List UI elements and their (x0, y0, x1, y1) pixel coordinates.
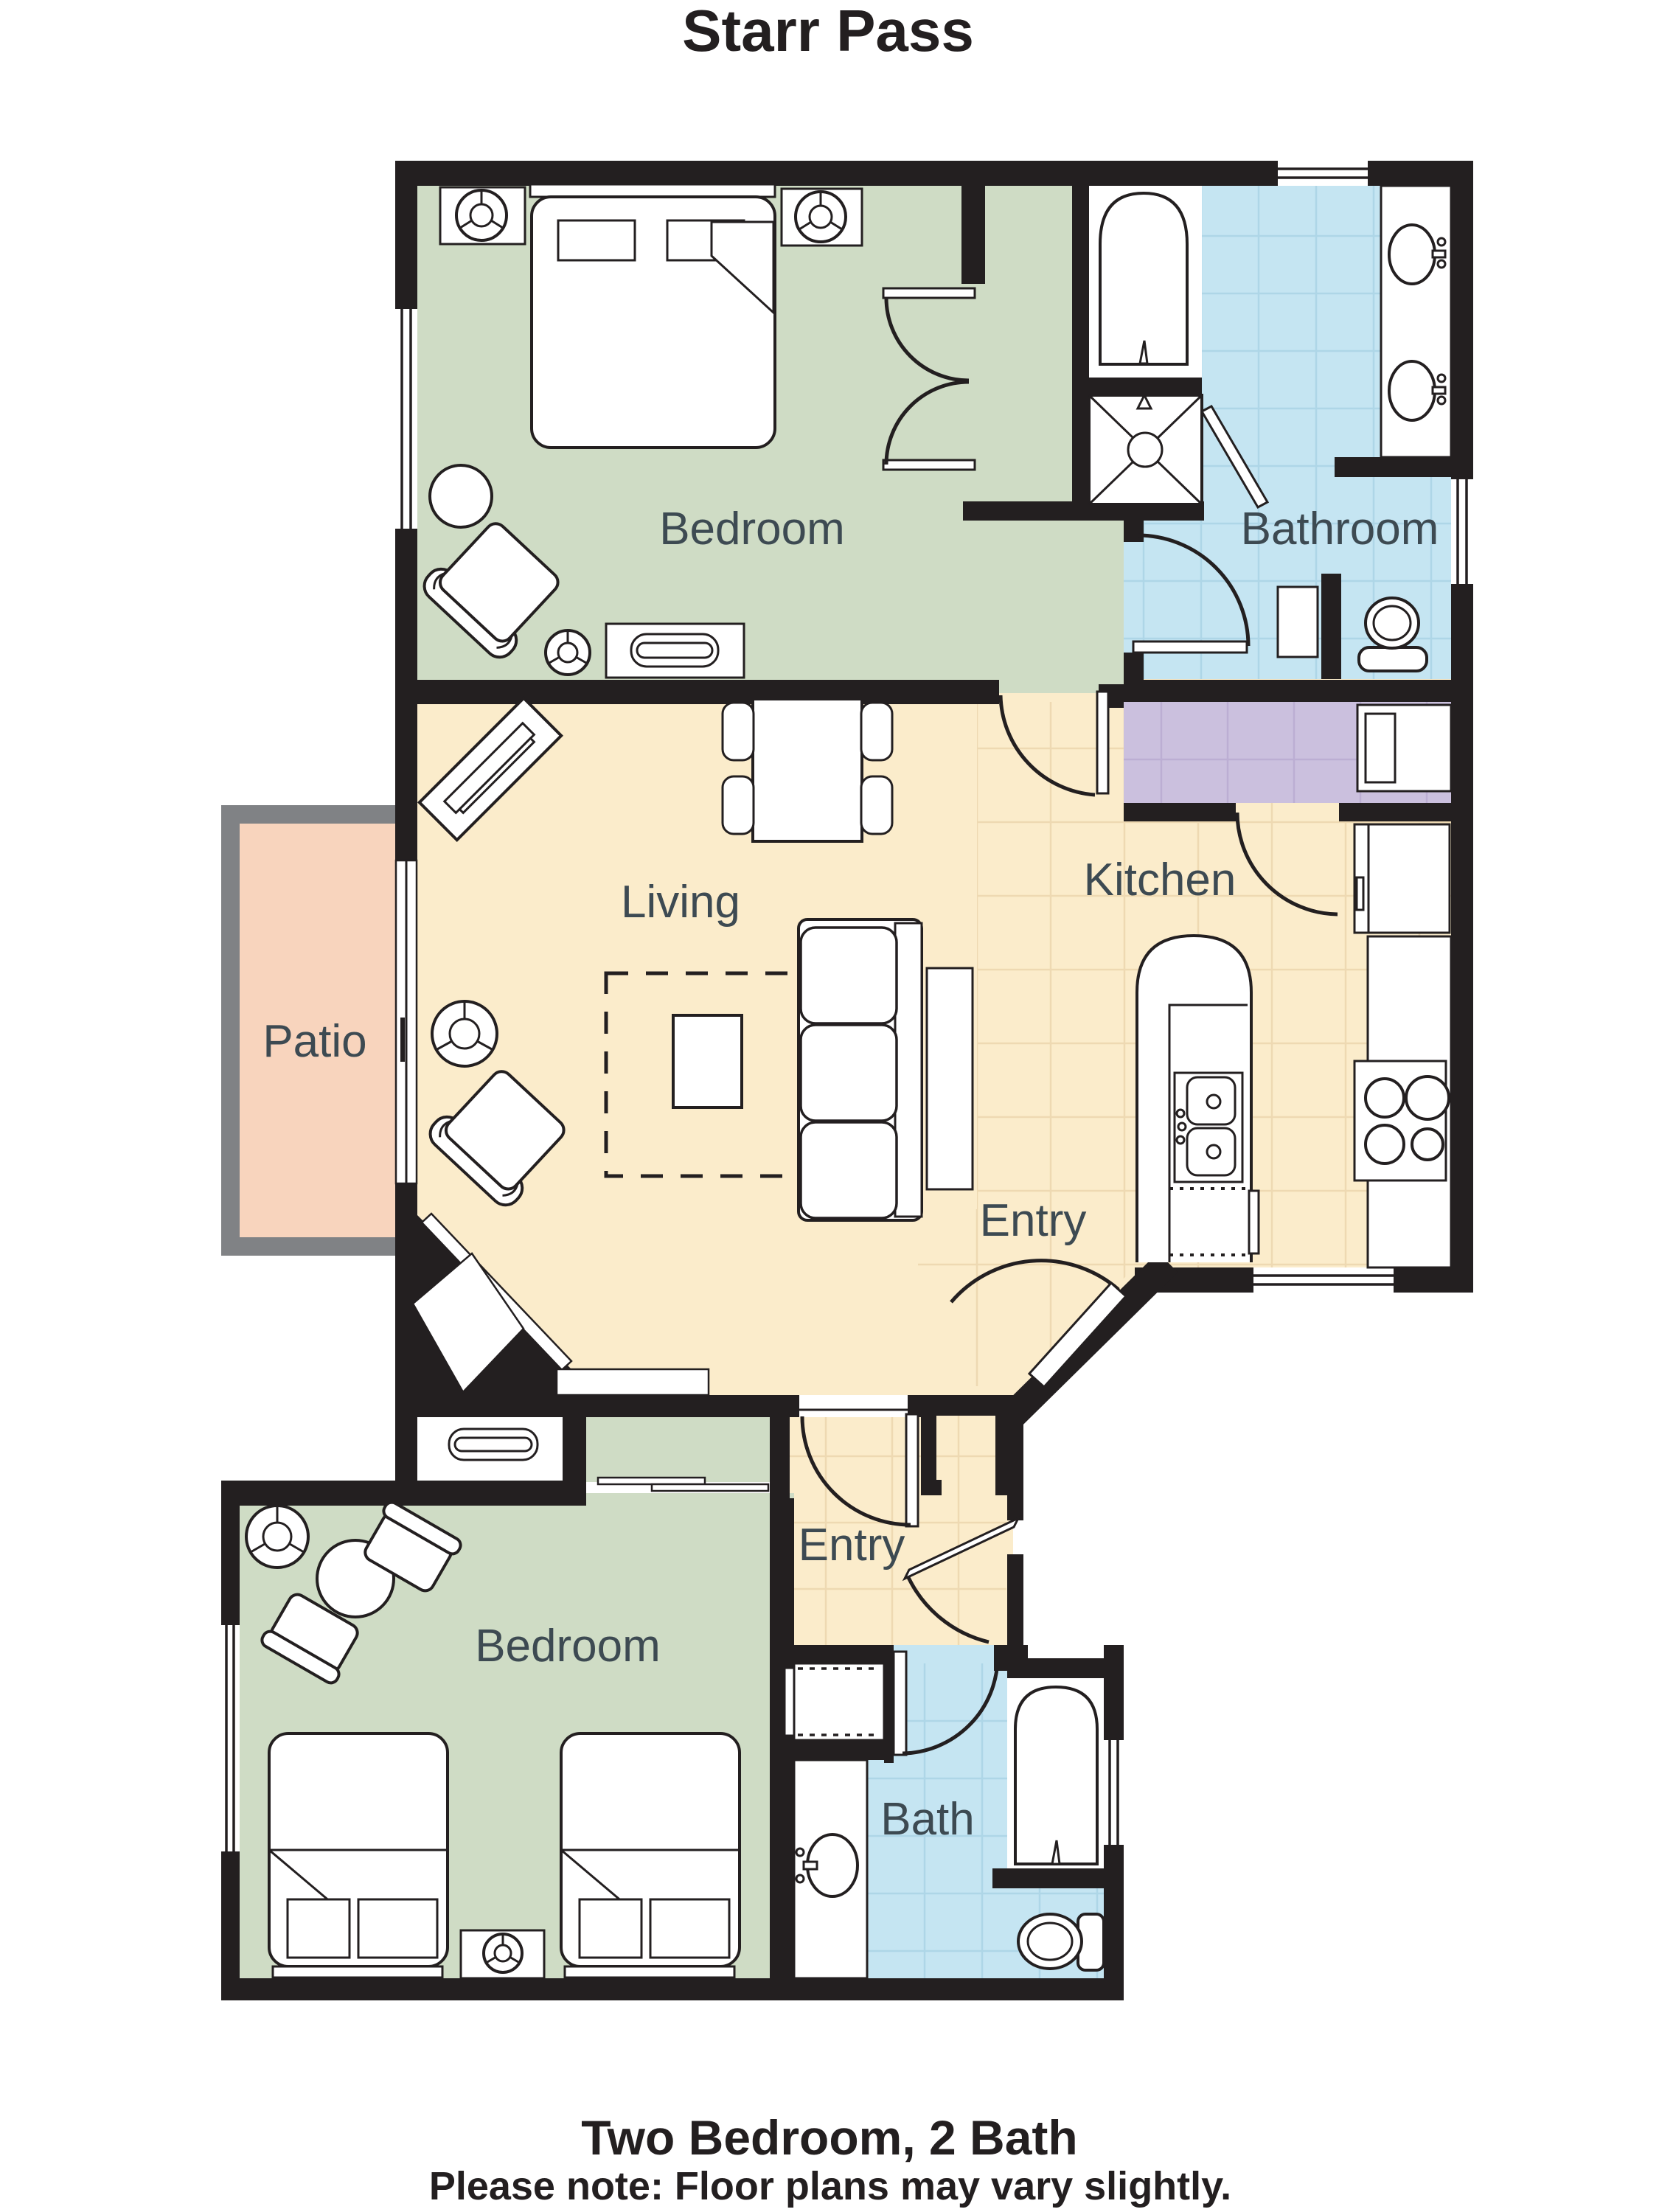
svg-text:Living: Living (621, 877, 740, 928)
svg-text:Bedroom: Bedroom (475, 1621, 661, 1672)
svg-text:Starr Pass: Starr Pass (682, 0, 974, 63)
svg-text:Please note: Floor plans may v: Please note: Floor plans may vary slight… (429, 2164, 1231, 2208)
svg-text:Bath: Bath (880, 1794, 975, 1845)
svg-text:Bedroom: Bedroom (659, 504, 845, 554)
svg-text:Two Bedroom, 2 Bath: Two Bedroom, 2 Bath (581, 2110, 1077, 2165)
svg-text:Entry: Entry (799, 1520, 905, 1571)
svg-text:Bathroom: Bathroom (1241, 504, 1439, 554)
svg-text:Patio: Patio (262, 1016, 366, 1067)
svg-text:Entry: Entry (980, 1195, 1087, 1246)
svg-text:Kitchen: Kitchen (1084, 855, 1237, 905)
